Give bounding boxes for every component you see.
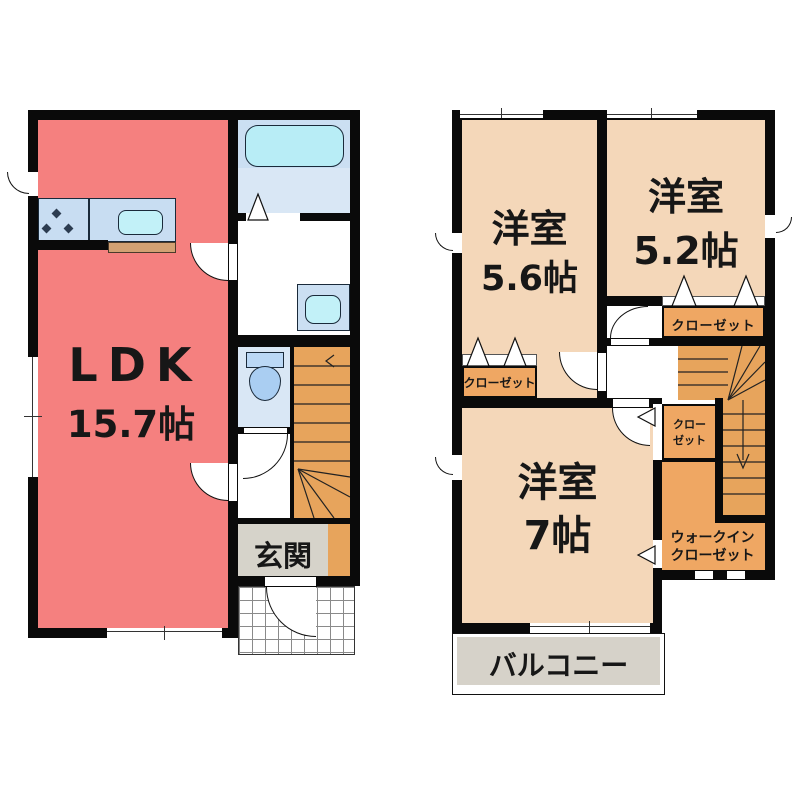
room-label-5-6: 洋室 [462,198,597,253]
entrance-step [328,524,350,576]
front-door-leaf [264,576,317,587]
room-label-7: 洋室 [462,450,653,508]
wall [238,335,350,347]
wall [350,110,360,586]
casement-window [452,233,462,253]
wall [653,570,775,580]
door-leaf [610,338,650,346]
wall [238,518,350,524]
window-line [32,357,33,477]
kitchen-sink-icon [118,210,163,235]
balcony-label: バルコニー [457,644,660,684]
door-leaf [597,352,607,392]
window-tick [501,108,502,118]
toilet-door-swing-icon [243,434,288,479]
back-door-opening [28,172,38,196]
closet-stairside-label-2: ゼット [662,432,717,448]
wall [715,515,765,523]
casement-window [452,455,462,480]
closet-5-2-label: クローゼット [662,315,765,334]
window [695,571,713,579]
door-leaf [612,398,650,408]
room-size-5-2: 5.2帖 [607,220,765,275]
wall [452,110,462,633]
folding-door-mark-icon [504,338,526,366]
folding-door-mark-icon [734,276,758,306]
door-leaf [228,243,238,281]
wall [765,110,775,580]
walk-in-closet-label-2: クローゼット [660,545,765,565]
stairs-2f-lower-treads-icon [723,398,765,515]
wall [28,110,360,120]
back-door-swing-icon [7,172,29,194]
entrance-label: 玄関 [238,533,328,575]
bathtub-icon [245,125,344,167]
door-swing-icon [610,306,648,338]
window [530,623,650,633]
casement-window [765,215,775,238]
room-label-ldk: LDK [40,338,230,392]
stairs-2f-treads-icon [678,346,765,400]
room-size-7: 7帖 [462,503,653,561]
casement-swing-icon [776,217,792,233]
washbasin-bowl-icon [305,295,341,324]
closet-stairside-label-1: クロー [662,416,717,432]
window-tick [651,108,652,118]
room-size-5-6: 5.6帖 [462,250,597,301]
wall [290,347,294,518]
window [727,571,745,579]
room-size-ldk: 15.7帖 [36,394,226,448]
door-mark-icon [638,408,655,426]
toilet-door-leaf [243,427,288,434]
kitchen-counter-base [108,242,176,253]
kitchen-partition-wall [38,240,108,250]
kitchen-counter-divider [88,198,90,242]
window-line [530,626,650,627]
window-tick [164,626,165,640]
casement-swing-icon [435,233,453,251]
floor-plan-canvas: LDK 15.7帖 玄関 [0,0,800,800]
folding-door-mark-icon [467,338,489,366]
door-leaf [228,463,238,502]
wall [607,296,662,306]
stairs-1f-treads-icon [294,347,350,518]
folding-door-mark-icon [672,276,696,306]
bathroom-door-mark-icon [248,194,268,220]
casement-swing-icon [435,457,453,475]
closet-5-6-label: クローゼット [462,374,537,391]
room-label-5-2: 洋室 [607,166,765,221]
window-line [607,114,697,115]
walk-in-closet-label-1: ウォークイン [660,527,765,547]
